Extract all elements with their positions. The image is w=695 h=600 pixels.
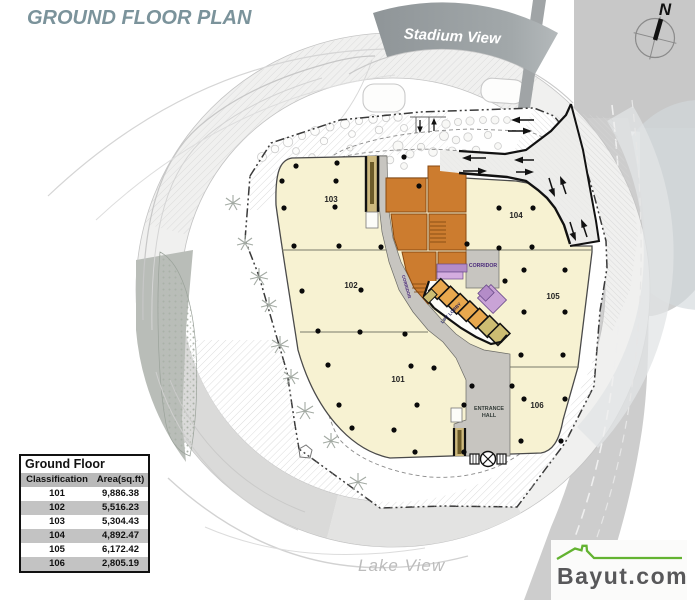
svg-text:N: N [659,0,672,19]
svg-text:103: 103 [324,195,338,204]
svg-text:104: 104 [509,211,523,220]
svg-text:ENTRANCE: ENTRANCE [474,406,504,412]
svg-text:106: 106 [530,401,544,410]
svg-text:101: 101 [391,375,405,384]
svg-text:HALL: HALL [482,413,497,419]
svg-text:102: 102 [344,281,358,290]
svg-text:105: 105 [546,292,560,301]
svg-text:CORRIDOR: CORRIDOR [469,263,497,269]
